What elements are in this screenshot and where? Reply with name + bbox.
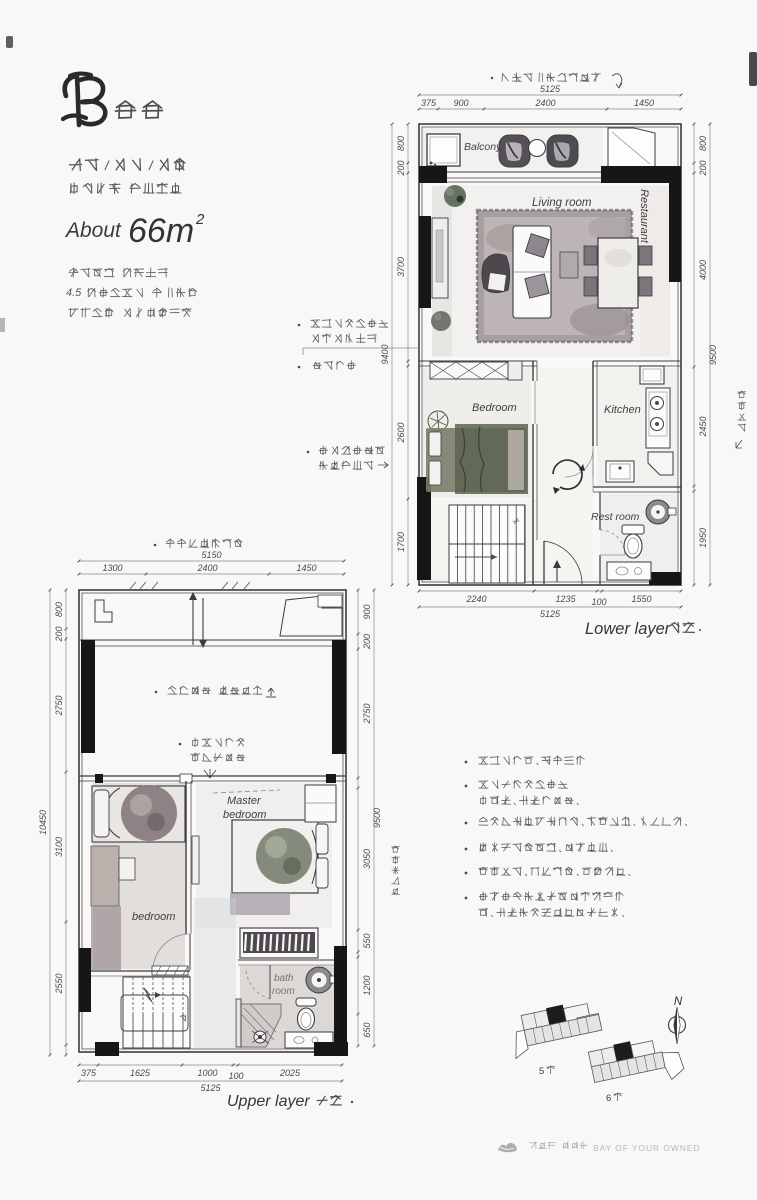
svg-text:Master: Master <box>227 795 262 807</box>
svg-text:1950: 1950 <box>698 528 708 548</box>
svg-text:5: 5 <box>539 1066 544 1077</box>
svg-text:Kitchen: Kitchen <box>604 404 641 416</box>
svg-text:2: 2 <box>195 211 205 228</box>
svg-text:375: 375 <box>421 98 437 108</box>
svg-text:About: About <box>64 219 122 242</box>
svg-text:/: / <box>148 158 154 173</box>
svg-text:1300: 1300 <box>102 563 122 573</box>
svg-text:Upper layer: Upper layer <box>227 1093 310 1110</box>
svg-text:4000: 4000 <box>698 260 708 280</box>
svg-text:2450: 2450 <box>698 416 708 437</box>
svg-text:2600: 2600 <box>396 422 406 443</box>
svg-text:800: 800 <box>396 136 406 151</box>
svg-text:1550: 1550 <box>631 594 651 604</box>
svg-text:Balcony: Balcony <box>464 141 502 153</box>
svg-text:Living room: Living room <box>532 197 592 209</box>
svg-text:5125: 5125 <box>540 84 561 94</box>
svg-text:10450: 10450 <box>38 810 48 835</box>
svg-text:650: 650 <box>362 1022 372 1037</box>
svg-text:100: 100 <box>591 597 606 607</box>
svg-text:5125: 5125 <box>540 609 561 619</box>
svg-text:1625: 1625 <box>130 1068 151 1078</box>
svg-text:1700: 1700 <box>396 532 406 552</box>
svg-text:375: 375 <box>81 1068 97 1078</box>
svg-text:bedroom: bedroom <box>132 911 175 923</box>
svg-text:900: 900 <box>453 98 468 108</box>
svg-text:200: 200 <box>362 634 372 650</box>
svg-text:5150: 5150 <box>201 550 221 560</box>
svg-text:1235: 1235 <box>555 594 576 604</box>
svg-text:1450: 1450 <box>634 98 654 108</box>
svg-text:200: 200 <box>396 160 406 176</box>
svg-text:5125: 5125 <box>200 1083 221 1093</box>
svg-text:2750: 2750 <box>54 695 64 716</box>
svg-text:N: N <box>674 996 683 1008</box>
svg-text:/: / <box>104 158 110 173</box>
svg-text:800: 800 <box>54 602 64 617</box>
svg-text:3050: 3050 <box>362 849 372 869</box>
svg-text:Restaurant: Restaurant <box>638 189 650 244</box>
svg-text:1200: 1200 <box>362 975 372 995</box>
svg-text:4.5: 4.5 <box>66 287 82 299</box>
svg-text:bedroom: bedroom <box>223 809 266 821</box>
svg-text:9500: 9500 <box>372 808 382 828</box>
svg-text:2400: 2400 <box>196 563 217 573</box>
svg-text:9500: 9500 <box>708 345 718 365</box>
svg-text:6: 6 <box>606 1093 611 1104</box>
svg-text:Lower layer: Lower layer <box>585 620 672 638</box>
svg-text:900: 900 <box>362 604 372 619</box>
svg-text:550: 550 <box>362 933 372 948</box>
svg-text:3100: 3100 <box>54 837 64 857</box>
svg-text:200: 200 <box>54 626 64 642</box>
svg-text:66m: 66m <box>128 212 194 250</box>
svg-text:9400: 9400 <box>380 344 390 364</box>
svg-text:BAY OF YOUR OWNED: BAY OF YOUR OWNED <box>593 1143 700 1153</box>
svg-text:200: 200 <box>698 160 708 176</box>
svg-text:1450: 1450 <box>296 563 316 573</box>
svg-text:100: 100 <box>228 1071 243 1081</box>
svg-text:2240: 2240 <box>465 594 486 604</box>
svg-text:2025: 2025 <box>279 1068 301 1078</box>
svg-text:800: 800 <box>698 136 708 151</box>
svg-text:2550: 2550 <box>54 973 64 994</box>
svg-text:1000: 1000 <box>197 1068 217 1078</box>
svg-text:2750: 2750 <box>362 703 372 724</box>
svg-text:2400: 2400 <box>534 98 555 108</box>
svg-text:Rest room: Rest room <box>591 511 640 523</box>
svg-text:Bedroom: Bedroom <box>472 402 517 414</box>
svg-text:3700: 3700 <box>396 257 406 277</box>
